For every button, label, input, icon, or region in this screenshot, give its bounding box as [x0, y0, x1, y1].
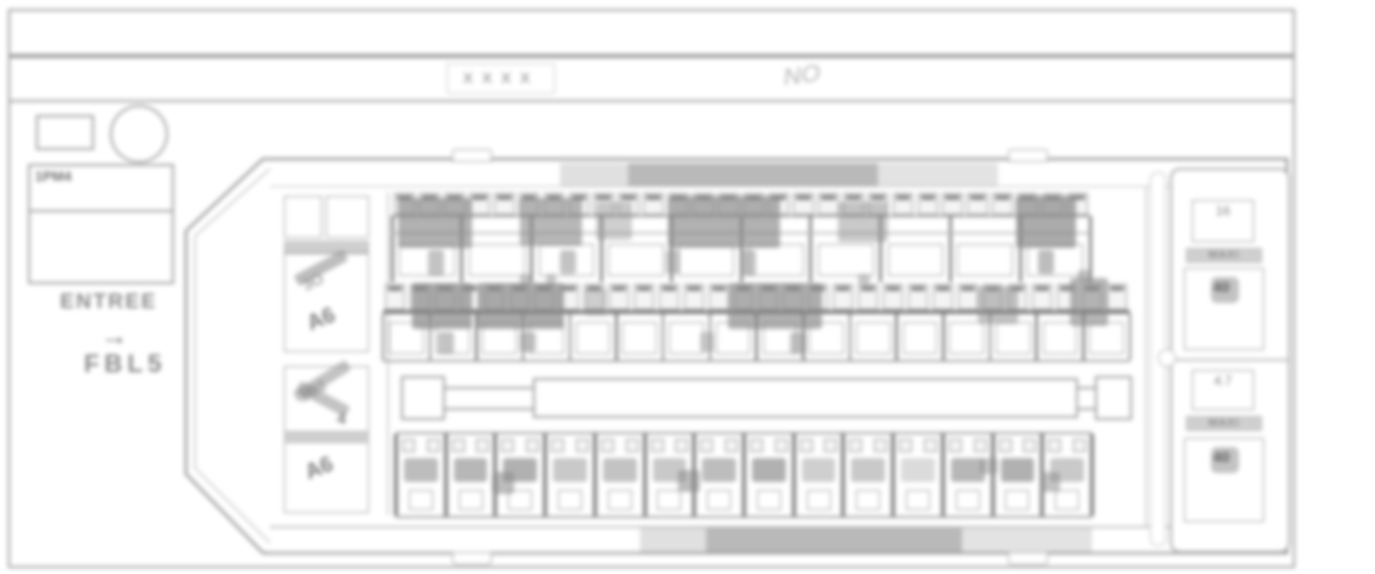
maxifuse2-type: MAXI [1187, 417, 1261, 429]
maxifuse2-band: MAXI [1186, 416, 1262, 431]
maxifuse2-value: 4.7 [1193, 373, 1253, 388]
right-column-container: 16 MAXI 40 4.7 MAXI 40 [1170, 168, 1290, 553]
busbar-slot [0, 0, 1375, 574]
maxifuse1-value: 16 [1193, 203, 1253, 218]
maxifuse2-amp: 40 [1213, 449, 1230, 466]
maxifuse1-band: MAXI [1186, 248, 1262, 263]
manual-page: XXXX NO 1PM4 ENTREE → FBL5 [0, 0, 1375, 574]
maxifuse1-body: 40 [1184, 268, 1264, 350]
right-column-divider [1172, 359, 1288, 361]
maxifuse2-body: 40 [1184, 438, 1264, 522]
right-notch-circle [1158, 349, 1176, 367]
maxifuse1-type: MAXI [1187, 249, 1261, 261]
maxifuse1-value-box: 16 [1192, 200, 1254, 242]
maxifuse1-amp: 40 [1213, 279, 1230, 296]
blurred-diagram-layer: XXXX NO 1PM4 ENTREE → FBL5 [0, 0, 1375, 574]
maxifuse2-value-box: 4.7 [1192, 370, 1254, 410]
